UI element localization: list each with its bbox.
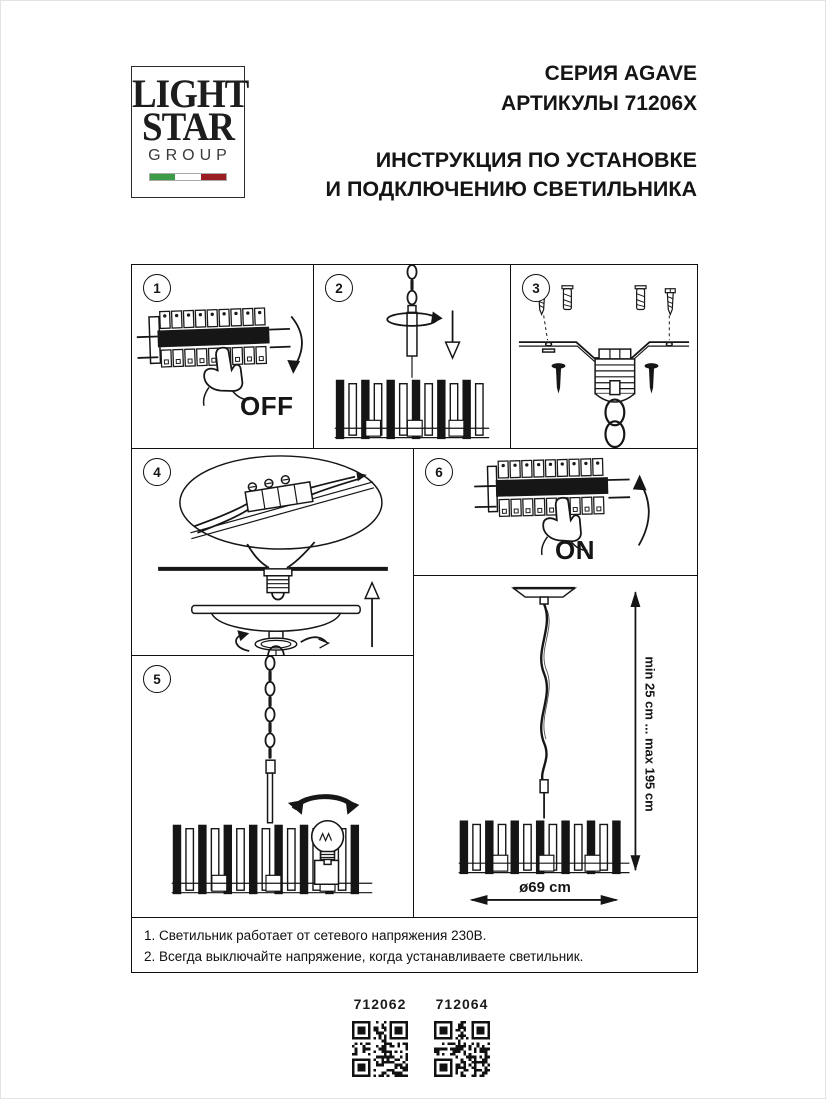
step-1-panel: 1 OFF [131, 264, 315, 450]
bulb-install-illustration [132, 656, 414, 918]
flag-green [150, 174, 175, 180]
product-left: 712062 [352, 996, 408, 1077]
arrowhead-icon [319, 639, 329, 648]
arrowhead-icon [633, 475, 647, 491]
note-line-2: 2. Всегда выключайте напряжение, когда у… [144, 946, 697, 967]
off-label: OFF [240, 391, 294, 422]
chandelier-drum [459, 820, 630, 874]
arrowhead-icon [601, 895, 619, 905]
flag-white [175, 174, 200, 180]
step-2-number: 2 [325, 274, 353, 302]
flag-red [201, 174, 226, 180]
product-right: 712064 [434, 996, 490, 1077]
mounting-screw-icon [552, 363, 566, 393]
product-code: 712062 [354, 996, 407, 1012]
step-5-number: 5 [143, 665, 171, 693]
step-4-number: 4 [143, 458, 171, 486]
lightstar-logo: LIGHT STAR GROUP [131, 66, 245, 198]
height-range-label: min 25 cm ... max 195 cm [643, 656, 658, 811]
arrowhead-icon [630, 855, 640, 871]
diameter-label: ø69 cm [519, 879, 571, 896]
wall-anchor-icon [635, 286, 646, 310]
logo-group: GROUP [136, 147, 244, 165]
ceiling-canopy [513, 588, 575, 597]
step-5-panel: 5 [131, 655, 415, 919]
arrowhead-icon [630, 591, 640, 607]
twist-arrow [288, 797, 359, 815]
italian-flag-icon [149, 173, 227, 181]
wall-anchor-icon [562, 286, 573, 310]
step-2-panel: 2 [313, 264, 512, 450]
step-3-number: 3 [522, 274, 550, 302]
instruction-title-line1: ИНСТРУКЦИЯ ПО УСТАНОВКЕ [326, 146, 697, 175]
logo-star: STAR [132, 110, 244, 146]
header: СЕРИЯ AGAVE АРТИКУЛЫ 71206X ИНСТРУКЦИЯ П… [326, 59, 697, 204]
mounting-screw-icon [645, 363, 659, 393]
instruction-sheet: LIGHT STAR GROUP СЕРИЯ AGAVE АРТИКУЛЫ 71… [0, 0, 826, 1099]
arrow-down-curve [291, 316, 302, 366]
articles-title: АРТИКУЛЫ 71206X [326, 89, 697, 119]
arrowhead-icon [287, 360, 300, 374]
product-code: 712064 [436, 996, 489, 1012]
series-title: СЕРИЯ AGAVE [326, 59, 697, 89]
canopy-plate [192, 605, 360, 613]
qr-code-712064 [434, 1021, 490, 1077]
qr-code-712062 [352, 1021, 408, 1077]
product-codes: 712062 712064 [321, 996, 521, 1077]
arrowhead-icon [365, 583, 379, 599]
step-6-panel: 6 ON [413, 448, 698, 577]
on-label: ON [555, 535, 595, 566]
note-line-1: 1. Светильник работает от сетевого напря… [144, 925, 697, 946]
step-6-number: 6 [425, 458, 453, 486]
arrowhead-icon [470, 895, 488, 905]
arrow-up-curve [639, 481, 649, 545]
notes-panel: 1. Светильник работает от сетевого напря… [131, 917, 698, 973]
screw-icon [665, 289, 675, 315]
step-1-number: 1 [143, 274, 171, 302]
step-4-panel: 4 [131, 448, 415, 657]
chandelier-drum [335, 380, 489, 439]
arrowhead-icon [446, 342, 460, 358]
hanging-chain [541, 604, 547, 785]
dimensions-panel: min 25 cm ... max 195 cm ø69 cm [413, 575, 698, 919]
step-3-panel: 3 [510, 264, 698, 450]
instruction-title-line2: И ПОДКЛЮЧЕНИЮ СВЕТИЛЬНИКА [326, 175, 697, 204]
wiring-canopy-illustration [132, 449, 414, 656]
canopy-dome [212, 613, 341, 631]
arrowhead-icon [431, 311, 443, 324]
arrowhead-icon [237, 630, 249, 641]
